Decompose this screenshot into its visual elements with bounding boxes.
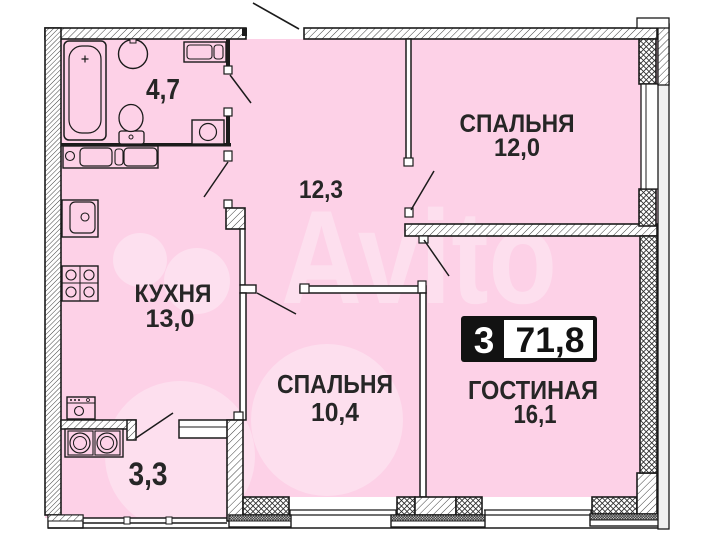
svg-text:3,3: 3,3 xyxy=(129,456,168,492)
svg-text:71,8: 71,8 xyxy=(516,321,585,360)
svg-text:Avito: Avito xyxy=(281,184,557,332)
svg-text:12,0: 12,0 xyxy=(494,134,540,162)
svg-text:4,7: 4,7 xyxy=(146,74,180,106)
svg-text:12,3: 12,3 xyxy=(299,176,343,204)
svg-text:3: 3 xyxy=(474,320,495,361)
svg-text:КУХНЯ: КУХНЯ xyxy=(135,280,212,308)
svg-text:10,4: 10,4 xyxy=(311,397,360,427)
svg-text:СПАЛЬНЯ: СПАЛЬНЯ xyxy=(277,369,393,399)
svg-text:16,1: 16,1 xyxy=(514,399,557,429)
svg-text:13,0: 13,0 xyxy=(146,305,195,333)
